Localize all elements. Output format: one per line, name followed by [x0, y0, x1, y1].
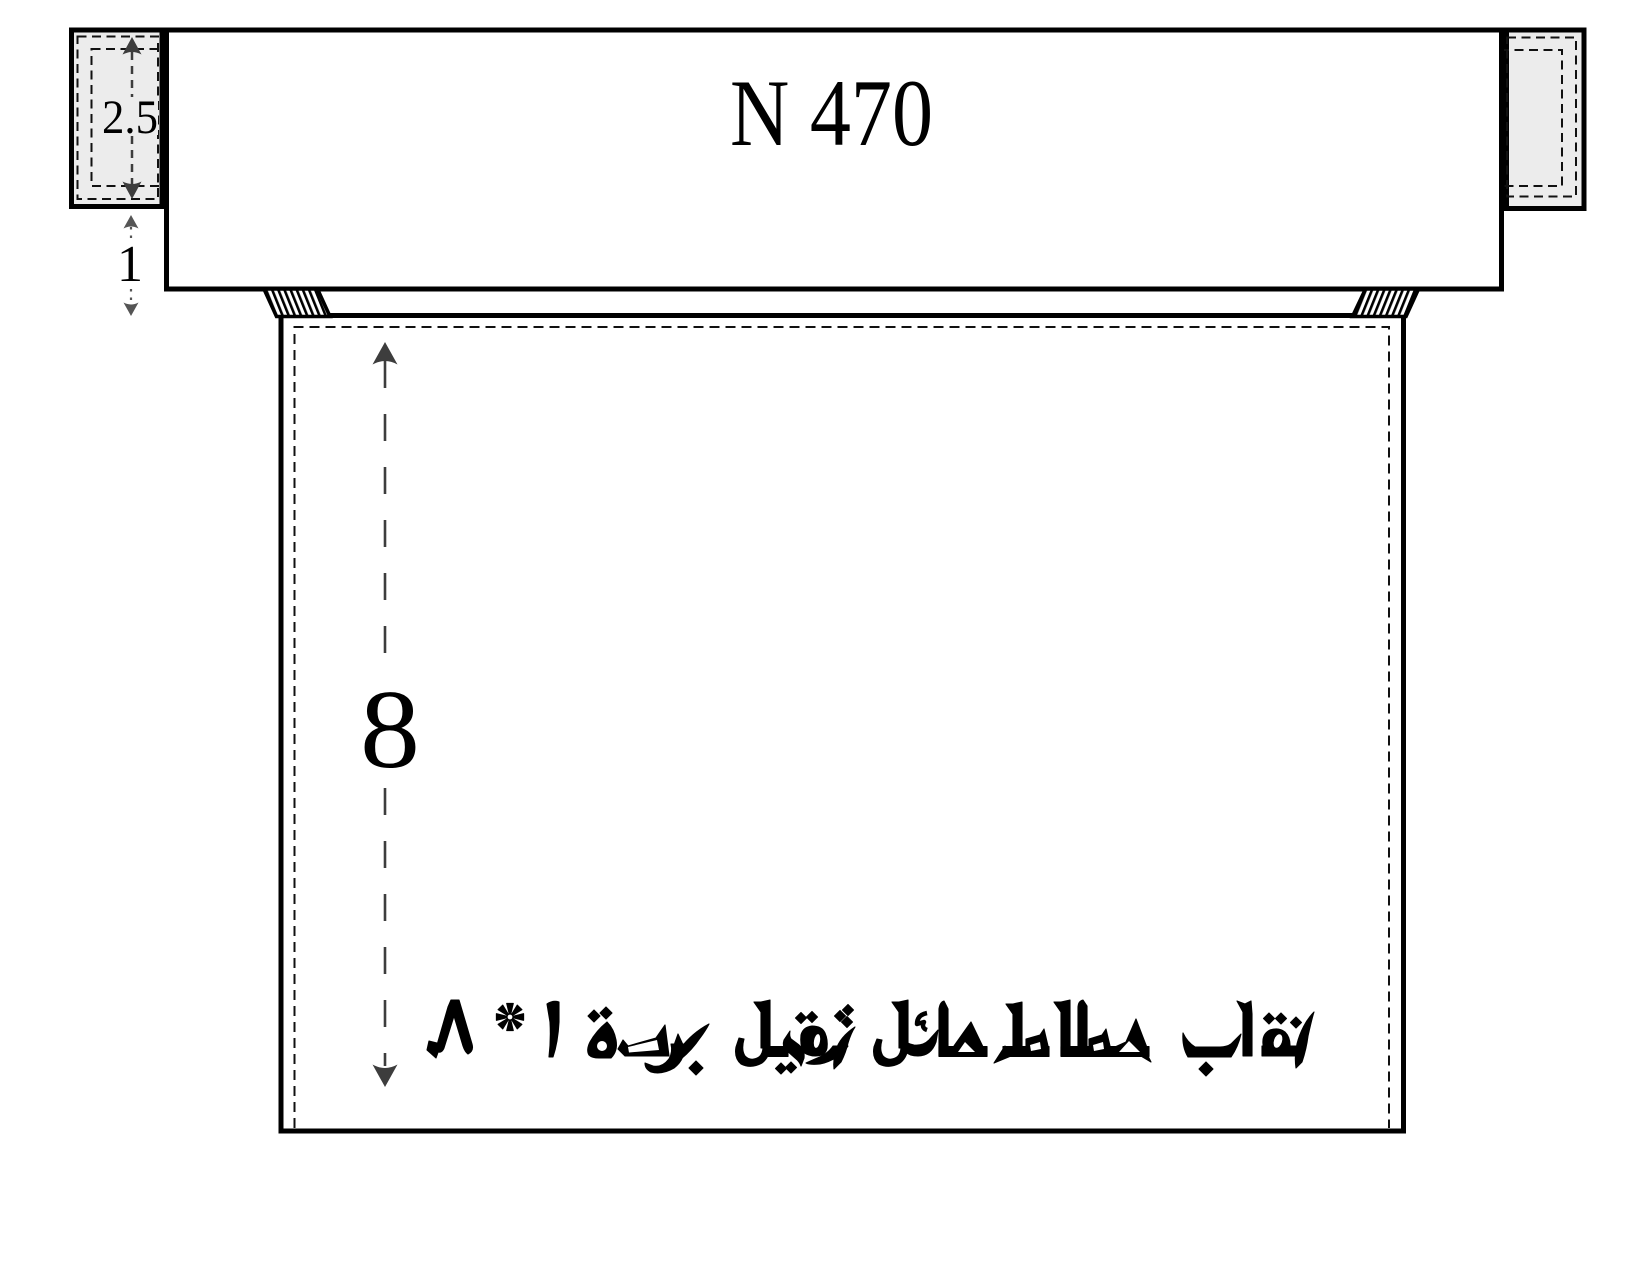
svg-text:1: 1 — [117, 236, 143, 293]
svg-text:2.5: 2.5 — [102, 91, 158, 144]
svg-text:8: 8 — [360, 668, 420, 792]
svg-text:N 470: N 470 — [730, 60, 933, 166]
